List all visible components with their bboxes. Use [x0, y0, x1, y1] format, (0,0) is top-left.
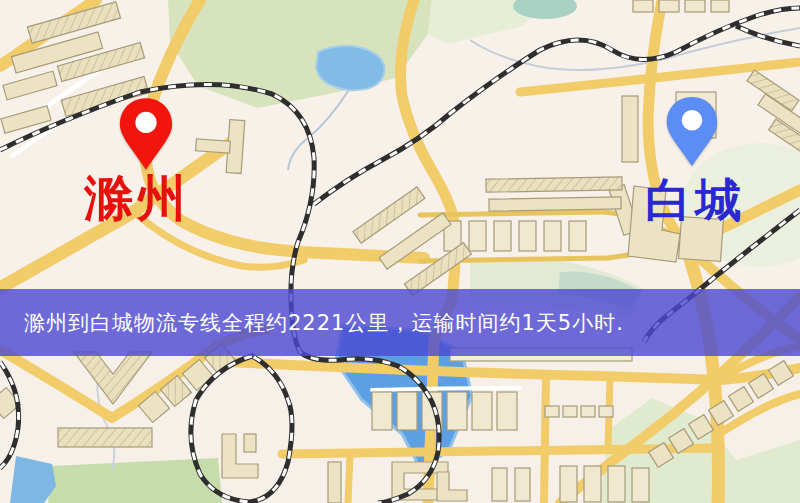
- route-info-banner: 滁州到白城物流专线全程约2221公里，运输时间约1天5小时.: [0, 289, 800, 356]
- basemap-graphic: [0, 0, 800, 503]
- map-screenshot: 滁州 白城 滁州到白城物流专线全程约2221公里，运输时间约1天5小时.: [0, 0, 800, 503]
- origin-city-label: 滁州: [84, 174, 190, 223]
- destination-pin-icon: [664, 95, 720, 168]
- destination-city-label: 白城: [645, 177, 745, 223]
- origin-pin-icon: [117, 96, 175, 172]
- route-info-text: 滁州到白城物流专线全程约2221公里，运输时间约1天5小时.: [24, 309, 624, 337]
